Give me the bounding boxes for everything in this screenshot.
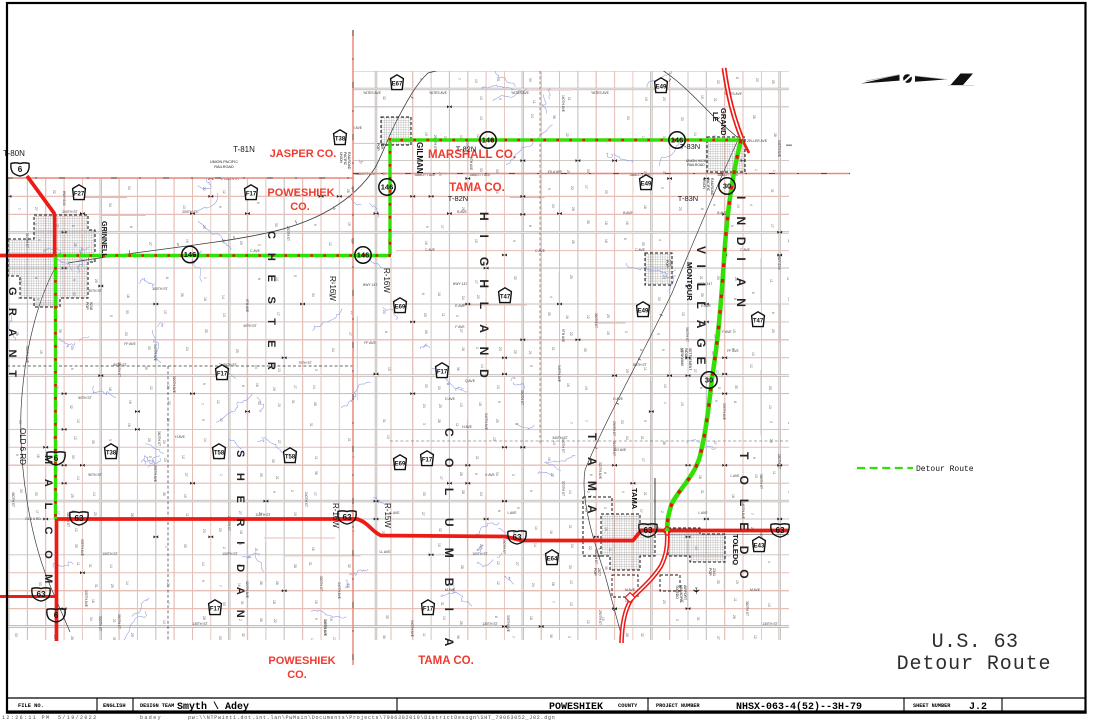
svg-text:A: A	[694, 320, 708, 329]
svg-text:N: N	[734, 298, 748, 307]
svg-text:30TH ST: 30TH ST	[88, 289, 102, 293]
svg-text:33: 33	[680, 117, 684, 121]
svg-text:1: 1	[772, 170, 776, 172]
svg-text:29: 29	[166, 418, 170, 422]
svg-text:2: 2	[624, 331, 628, 333]
svg-text:25: 25	[235, 349, 239, 353]
svg-text:8: 8	[494, 616, 498, 618]
svg-text:C AVE: C AVE	[740, 248, 750, 252]
svg-text:360TH ST: 360TH ST	[11, 492, 15, 507]
svg-text:340TH AVE: 340TH AVE	[153, 344, 157, 362]
svg-text:16: 16	[311, 547, 315, 551]
svg-text:9: 9	[272, 491, 276, 493]
svg-text:31: 31	[382, 419, 386, 423]
svg-text:29: 29	[147, 438, 151, 442]
svg-text:C AVE: C AVE	[250, 249, 260, 253]
svg-text:32: 32	[438, 528, 442, 532]
svg-text:6: 6	[771, 312, 775, 314]
svg-text:28: 28	[479, 544, 483, 548]
svg-text:H AVE: H AVE	[462, 425, 472, 429]
svg-text:16: 16	[549, 530, 553, 534]
svg-text:9: 9	[529, 490, 533, 492]
svg-text:30: 30	[657, 297, 661, 301]
svg-text:11: 11	[441, 313, 445, 317]
svg-text:F17: F17	[210, 606, 221, 612]
svg-text:2877: 2877	[597, 568, 601, 576]
svg-text:8: 8	[129, 226, 133, 228]
svg-text:17: 17	[584, 185, 588, 189]
svg-text:34: 34	[89, 617, 93, 621]
svg-text:19: 19	[347, 222, 351, 226]
svg-text:10: 10	[768, 405, 772, 409]
svg-text:2: 2	[455, 315, 459, 317]
svg-text:9: 9	[218, 206, 222, 208]
svg-text:35: 35	[547, 312, 551, 316]
svg-text:30: 30	[222, 602, 226, 606]
svg-text:27: 27	[693, 369, 697, 373]
svg-text:29: 29	[716, 276, 720, 280]
svg-text:M AVE: M AVE	[750, 588, 761, 592]
svg-text:O: O	[737, 475, 751, 484]
svg-text:9: 9	[547, 188, 551, 190]
svg-text:3: 3	[314, 369, 318, 371]
svg-text:H: H	[477, 212, 491, 221]
svg-text:10: 10	[751, 352, 755, 356]
svg-text:8: 8	[700, 208, 704, 210]
svg-text:HWY 147: HWY 147	[363, 283, 378, 287]
svg-text:ENGLISH: ENGLISH	[103, 703, 126, 709]
svg-text:28: 28	[625, 633, 629, 637]
svg-text:TOLEDO: TOLEDO	[731, 534, 740, 565]
svg-text:H AVE: H AVE	[175, 435, 185, 439]
svg-text:19: 19	[183, 494, 187, 498]
svg-text:240TH ST: 240TH ST	[304, 492, 308, 507]
svg-text:63: 63	[74, 514, 84, 523]
svg-text:17: 17	[439, 476, 443, 480]
svg-text:18: 18	[478, 402, 482, 406]
svg-text:7: 7	[569, 422, 573, 424]
svg-text:31: 31	[309, 423, 313, 427]
svg-text:25: 25	[70, 494, 74, 498]
svg-text:23: 23	[662, 600, 666, 604]
svg-text:390TH ST: 390TH ST	[117, 614, 121, 629]
svg-text:370TH ST: 370TH ST	[561, 481, 565, 496]
svg-text:1: 1	[641, 136, 645, 138]
svg-text:T38: T38	[335, 136, 346, 142]
svg-text:22: 22	[273, 619, 277, 623]
svg-text:MONTOUR: MONTOUR	[685, 262, 694, 301]
svg-text:26: 26	[424, 330, 428, 334]
svg-text:17: 17	[313, 492, 317, 496]
svg-text:25: 25	[771, 80, 775, 84]
svg-text:1: 1	[754, 169, 758, 171]
svg-text:N: N	[477, 347, 491, 356]
svg-text:14: 14	[312, 385, 316, 389]
svg-text:R: R	[234, 518, 246, 526]
svg-text:PACIFIC: PACIFIC	[706, 178, 710, 192]
svg-text:18: 18	[346, 584, 350, 588]
svg-text:305TH AVE: 305TH AVE	[84, 590, 88, 608]
svg-text:28: 28	[460, 565, 464, 569]
svg-text:23: 23	[202, 225, 206, 229]
svg-text:20: 20	[163, 458, 167, 462]
svg-text:10: 10	[736, 204, 740, 208]
svg-text:16: 16	[314, 600, 318, 604]
svg-text:21: 21	[567, 97, 571, 101]
svg-text:E: E	[234, 496, 246, 503]
svg-text:36: 36	[162, 492, 166, 496]
svg-text:33: 33	[34, 492, 38, 496]
svg-text:11: 11	[733, 598, 737, 602]
svg-text:14: 14	[92, 492, 96, 496]
svg-text:18: 18	[126, 294, 130, 298]
svg-text:TAMA CO.: TAMA CO.	[449, 182, 505, 194]
svg-text:26: 26	[571, 240, 575, 244]
svg-text:34: 34	[127, 186, 131, 190]
svg-text:TAMA CO.: TAMA CO.	[418, 655, 474, 667]
svg-text:F17: F17	[246, 191, 257, 197]
svg-text:360TH ST: 360TH ST	[157, 431, 161, 446]
svg-text:12: 12	[586, 620, 590, 624]
svg-text:C AVE: C AVE	[535, 249, 545, 253]
svg-text:2: 2	[290, 490, 294, 492]
svg-text:32: 32	[347, 564, 351, 568]
svg-text:300TH ST: 300TH ST	[98, 616, 102, 631]
svg-text:36: 36	[58, 329, 62, 333]
svg-text:305TH AVE: 305TH AVE	[323, 619, 327, 637]
svg-text:13: 13	[663, 384, 667, 388]
svg-text:21: 21	[258, 512, 262, 516]
svg-text:2: 2	[222, 547, 226, 549]
svg-text:12: 12	[496, 581, 500, 585]
svg-text:27: 27	[515, 562, 519, 566]
svg-text:G: G	[694, 338, 708, 347]
svg-text:14: 14	[442, 616, 446, 620]
svg-text:35: 35	[183, 544, 187, 548]
svg-text:22: 22	[565, 133, 569, 137]
svg-text:20: 20	[551, 204, 555, 208]
svg-text:8: 8	[639, 349, 643, 351]
svg-text:3: 3	[511, 474, 515, 476]
svg-text:M AVE: M AVE	[445, 588, 456, 592]
svg-text:I: I	[477, 234, 491, 237]
svg-text:9: 9	[313, 224, 317, 226]
svg-text:33: 33	[716, 80, 720, 84]
svg-text:25: 25	[606, 314, 610, 318]
svg-text:11: 11	[772, 471, 776, 475]
svg-text:33: 33	[38, 582, 42, 586]
svg-text:S: S	[234, 450, 246, 457]
svg-text:RAILROAD: RAILROAD	[710, 178, 714, 196]
svg-text:31: 31	[88, 564, 92, 568]
svg-text:pw:\\NTPwint1.dot.int.lan\PwMa: pw:\\NTPwint1.dot.int.lan\PwMain\Documen…	[188, 715, 556, 721]
svg-text:2: 2	[660, 511, 664, 513]
svg-text:11: 11	[185, 513, 189, 517]
svg-text:M AVE: M AVE	[625, 588, 636, 592]
svg-text:50TH ST: 50TH ST	[78, 396, 92, 400]
svg-text:T47: T47	[500, 294, 511, 300]
svg-text:JASPER CO.: JASPER CO.	[270, 148, 337, 160]
svg-text:100TH ST: 100TH ST	[222, 552, 237, 556]
svg-text:30: 30	[723, 182, 731, 191]
svg-text:6: 6	[699, 387, 703, 389]
svg-text:T: T	[265, 318, 277, 325]
svg-text:22: 22	[167, 401, 171, 405]
svg-text:360TH ST: 360TH ST	[594, 313, 598, 328]
svg-text:8: 8	[497, 510, 501, 512]
svg-text:3: 3	[498, 98, 502, 100]
svg-text:Detour Route: Detour Route	[897, 653, 1052, 676]
svg-text:22: 22	[588, 546, 592, 550]
svg-text:22: 22	[569, 332, 573, 336]
svg-text:146: 146	[381, 183, 394, 192]
svg-text:30: 30	[495, 169, 499, 173]
svg-text:35: 35	[604, 566, 608, 570]
svg-text:E67: E67	[392, 81, 403, 87]
svg-text:22: 22	[550, 473, 554, 477]
svg-text:9: 9	[712, 204, 716, 206]
svg-text:I: I	[234, 541, 246, 544]
svg-text:S: S	[265, 296, 277, 303]
svg-text:YATES AVE: YATES AVE	[591, 91, 610, 95]
svg-text:305TH AVE: 305TH AVE	[506, 615, 510, 633]
svg-text:M: M	[442, 548, 456, 558]
svg-text:30: 30	[19, 489, 23, 493]
svg-text:21: 21	[643, 492, 647, 496]
svg-text:6: 6	[603, 472, 607, 474]
svg-text:146: 146	[482, 136, 495, 145]
svg-text:13: 13	[496, 385, 500, 389]
svg-text:26: 26	[166, 385, 170, 389]
svg-text:E69: E69	[395, 304, 406, 310]
svg-text:12: 12	[476, 134, 480, 138]
svg-text:C: C	[42, 526, 54, 534]
svg-text:3: 3	[567, 636, 571, 638]
svg-text:I: I	[442, 608, 456, 611]
svg-text:A: A	[234, 587, 246, 595]
svg-text:18: 18	[36, 454, 40, 458]
svg-text:NHSX-063-4(52)--3H-79: NHSX-063-4(52)--3H-79	[736, 701, 862, 713]
svg-text:345TH AVE: 345TH AVE	[777, 140, 781, 158]
svg-text:14: 14	[203, 438, 207, 442]
svg-text:C AVE: C AVE	[425, 248, 435, 252]
svg-text:12: 12	[753, 635, 757, 639]
svg-text:13: 13	[222, 313, 226, 317]
svg-text:146: 146	[184, 250, 197, 259]
svg-text:19: 19	[680, 402, 684, 406]
svg-text:30: 30	[568, 565, 572, 569]
svg-text:17: 17	[293, 385, 297, 389]
svg-text:4: 4	[749, 204, 753, 206]
svg-text:E49: E49	[638, 308, 649, 314]
svg-text:22: 22	[202, 187, 206, 191]
svg-text:RAILROAD: RAILROAD	[214, 165, 234, 169]
svg-text:Q AVE: Q AVE	[465, 379, 476, 383]
svg-text:SETTLEMENT: SETTLEMENT	[688, 348, 692, 370]
svg-text:16: 16	[127, 423, 131, 427]
svg-text:18: 18	[437, 292, 441, 296]
svg-text:8: 8	[735, 77, 739, 79]
svg-text:19: 19	[424, 132, 428, 136]
svg-text:3: 3	[769, 421, 773, 423]
svg-text:16: 16	[128, 400, 132, 404]
svg-text:17: 17	[219, 418, 223, 422]
svg-text:5: 5	[109, 315, 113, 317]
svg-text:4: 4	[621, 491, 625, 493]
svg-text:34: 34	[311, 293, 315, 297]
svg-text:L: L	[442, 488, 456, 495]
svg-text:22: 22	[52, 190, 56, 194]
svg-text:19: 19	[329, 617, 333, 621]
svg-text:28: 28	[461, 490, 465, 494]
svg-text:14: 14	[109, 564, 113, 568]
svg-text:POP.: POP.	[85, 302, 89, 310]
svg-text:RAILROAD: RAILROAD	[347, 152, 351, 170]
svg-text:6: 6	[421, 293, 425, 295]
svg-text:14: 14	[254, 365, 258, 369]
svg-text:8: 8	[257, 278, 261, 280]
svg-text:E43: E43	[754, 543, 765, 549]
svg-text:J.2: J.2	[969, 702, 987, 713]
svg-text:7: 7	[200, 403, 204, 405]
svg-text:18: 18	[203, 297, 207, 301]
svg-text:25: 25	[625, 369, 629, 373]
svg-text:32: 32	[640, 633, 644, 637]
svg-text:5: 5	[512, 240, 516, 242]
svg-text:19: 19	[735, 580, 739, 584]
svg-text:21: 21	[568, 525, 572, 529]
svg-text:6: 6	[751, 292, 755, 294]
svg-text:25: 25	[569, 275, 573, 279]
svg-text:30: 30	[586, 169, 590, 173]
svg-text:POP.: POP.	[376, 143, 380, 151]
svg-text:GILMAN: GILMAN	[415, 142, 424, 174]
svg-text:305TH AVE: 305TH AVE	[722, 403, 726, 421]
svg-text:28: 28	[275, 581, 279, 585]
svg-text:E69: E69	[395, 461, 406, 467]
svg-text:14: 14	[162, 620, 166, 624]
svg-text:29: 29	[768, 386, 772, 390]
svg-text:90TH ST: 90TH ST	[88, 473, 102, 477]
svg-text:14: 14	[568, 490, 572, 494]
svg-text:17: 17	[440, 225, 444, 229]
svg-text:E: E	[737, 522, 751, 530]
svg-text:F27: F27	[74, 191, 85, 197]
svg-text:110TH ST: 110TH ST	[255, 513, 270, 517]
svg-text:241: 241	[669, 260, 673, 266]
svg-text:A: A	[734, 278, 748, 287]
svg-text:33: 33	[125, 310, 129, 314]
svg-text:12: 12	[496, 561, 500, 565]
svg-text:T: T	[585, 433, 599, 441]
svg-text:T47: T47	[753, 318, 764, 324]
svg-text:GRINNELL: GRINNELL	[100, 221, 109, 258]
svg-text:31: 31	[440, 602, 444, 606]
svg-text:Smyth \ Adey: Smyth \ Adey	[177, 701, 249, 713]
svg-text:29: 29	[239, 241, 243, 245]
svg-text:27: 27	[184, 473, 188, 477]
svg-text:6: 6	[18, 165, 23, 174]
svg-text:24: 24	[570, 544, 574, 548]
svg-text:9: 9	[201, 580, 205, 582]
svg-text:POP.: POP.	[593, 568, 597, 576]
svg-text:31: 31	[700, 490, 704, 494]
svg-text:17: 17	[639, 509, 643, 513]
svg-text:8: 8	[241, 385, 245, 387]
svg-text:C: C	[265, 231, 277, 239]
svg-text:32: 32	[69, 405, 73, 409]
svg-text:6: 6	[623, 238, 627, 240]
svg-text:5: 5	[201, 419, 205, 421]
svg-text:T-83N: T-83N	[678, 194, 698, 203]
svg-text:9: 9	[202, 383, 206, 385]
svg-text:18: 18	[731, 494, 735, 498]
svg-text:I: I	[734, 196, 748, 199]
svg-text:14: 14	[693, 132, 697, 136]
svg-text:345TH AVE: 345TH AVE	[25, 346, 29, 364]
svg-text:18: 18	[239, 530, 243, 534]
svg-text:21: 21	[475, 456, 479, 460]
svg-text:27: 27	[421, 512, 425, 516]
svg-text:7: 7	[457, 78, 461, 80]
svg-text:E64: E64	[547, 556, 558, 562]
svg-text:33: 33	[147, 346, 151, 350]
svg-text:70TH ST: 70TH ST	[298, 361, 312, 365]
svg-text:9: 9	[752, 457, 756, 459]
svg-text:T-81N: T-81N	[233, 145, 255, 154]
svg-text:19: 19	[601, 617, 605, 621]
svg-text:1: 1	[219, 474, 223, 476]
svg-text:A: A	[585, 457, 599, 466]
svg-text:26: 26	[259, 618, 263, 622]
svg-text:28: 28	[732, 615, 736, 619]
svg-text:D AVE: D AVE	[613, 397, 623, 401]
svg-text:35: 35	[734, 385, 738, 389]
svg-text:4: 4	[161, 365, 165, 367]
svg-text:15: 15	[474, 239, 478, 243]
svg-text:9: 9	[714, 400, 718, 402]
svg-text:T-83N: T-83N	[680, 142, 700, 151]
svg-text:63: 63	[643, 526, 653, 535]
svg-text:25: 25	[130, 633, 134, 637]
svg-text:D: D	[234, 564, 246, 572]
svg-text:17: 17	[770, 224, 774, 228]
svg-text:PACIFIC: PACIFIC	[343, 152, 347, 166]
svg-text:34: 34	[257, 401, 261, 405]
svg-text:200TH ST: 200TH ST	[62, 210, 77, 214]
svg-text:29: 29	[110, 584, 114, 588]
svg-text:9: 9	[514, 423, 518, 425]
svg-text:35: 35	[18, 420, 22, 424]
svg-text:16: 16	[606, 331, 610, 335]
svg-text:34: 34	[626, 116, 630, 120]
svg-text:HWY E49: HWY E49	[62, 191, 66, 206]
svg-text:35: 35	[91, 440, 95, 444]
svg-text:18: 18	[332, 206, 336, 210]
svg-text:9218: 9218	[89, 302, 93, 310]
svg-text:12: 12	[149, 386, 153, 390]
svg-text:30: 30	[705, 376, 713, 385]
svg-text:6: 6	[54, 611, 59, 620]
svg-text:5: 5	[730, 225, 734, 227]
svg-text:24: 24	[531, 583, 535, 587]
svg-text:35: 35	[641, 242, 645, 246]
svg-text:badey: badey	[140, 715, 162, 721]
svg-text:A: A	[442, 638, 456, 647]
svg-text:21: 21	[112, 619, 116, 623]
svg-text:340TH AVE: 340TH AVE	[337, 582, 341, 600]
svg-text:30: 30	[528, 78, 532, 82]
